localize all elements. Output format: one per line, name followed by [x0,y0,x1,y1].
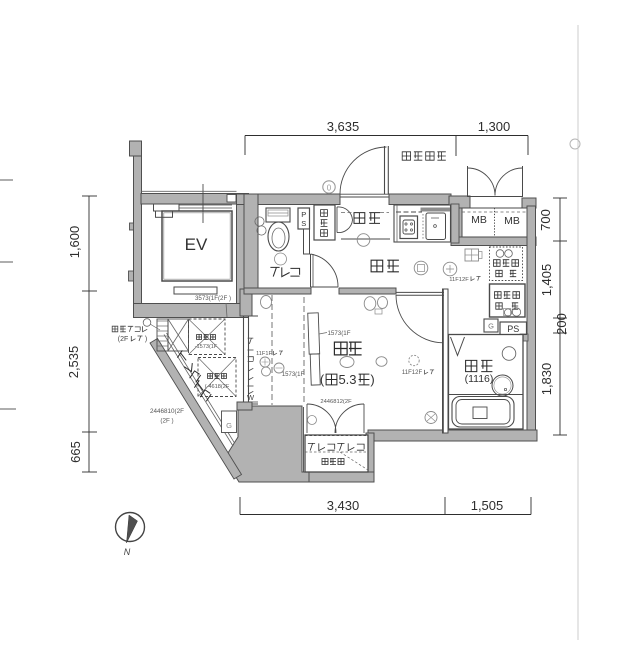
svg-text:11F12F: 11F12F [402,370,423,376]
svg-text:(1116): (1116) [465,373,494,385]
svg-text:11F1F: 11F1F [256,351,272,357]
svg-text:G: G [226,421,232,430]
svg-text:3,430: 3,430 [327,498,360,513]
svg-text:(2F ): (2F ) [160,418,173,425]
svg-text:(-4618(2F: (-4618(2F [205,384,230,390]
svg-text:700: 700 [538,209,553,231]
svg-text:2,535: 2,535 [66,346,81,379]
svg-text:S: S [301,219,306,228]
svg-text:3573(1F(2F ): 3573(1F(2F ) [195,295,231,302]
svg-text:1573(1F: 1573(1F [327,330,350,337]
svg-text:1,600: 1,600 [67,226,82,259]
svg-text:2446810(2F: 2446810(2F [150,408,184,415]
svg-text:1,830: 1,830 [539,363,554,396]
svg-text:): ) [145,336,147,343]
svg-text:5.3: 5.3 [338,372,356,387]
svg-text:0: 0 [327,184,332,193]
svg-text:11F12F: 11F12F [449,277,469,283]
svg-text:3,635: 3,635 [327,119,360,134]
svg-text:N: N [124,547,131,557]
svg-text:(2F: (2F [118,336,129,343]
svg-text:1,405: 1,405 [539,264,554,297]
svg-text:1,505: 1,505 [471,498,504,513]
svg-text:200: 200 [554,313,569,335]
svg-text:P: P [301,210,306,219]
svg-text:1573(1F: 1573(1F [282,372,305,378]
svg-text:665: 665 [68,441,83,463]
svg-text:-1573(1F: -1573(1F [195,344,218,350]
svg-text:1,300: 1,300 [478,119,511,134]
svg-text:2446812(2F: 2446812(2F [320,399,352,405]
svg-text:MB: MB [471,214,487,226]
svg-text:G: G [488,322,494,331]
svg-text:EV: EV [185,235,208,254]
svg-text:): ) [370,372,374,387]
svg-text:W: W [247,393,255,402]
svg-text:MB: MB [504,215,520,227]
svg-text:PS: PS [507,324,519,334]
